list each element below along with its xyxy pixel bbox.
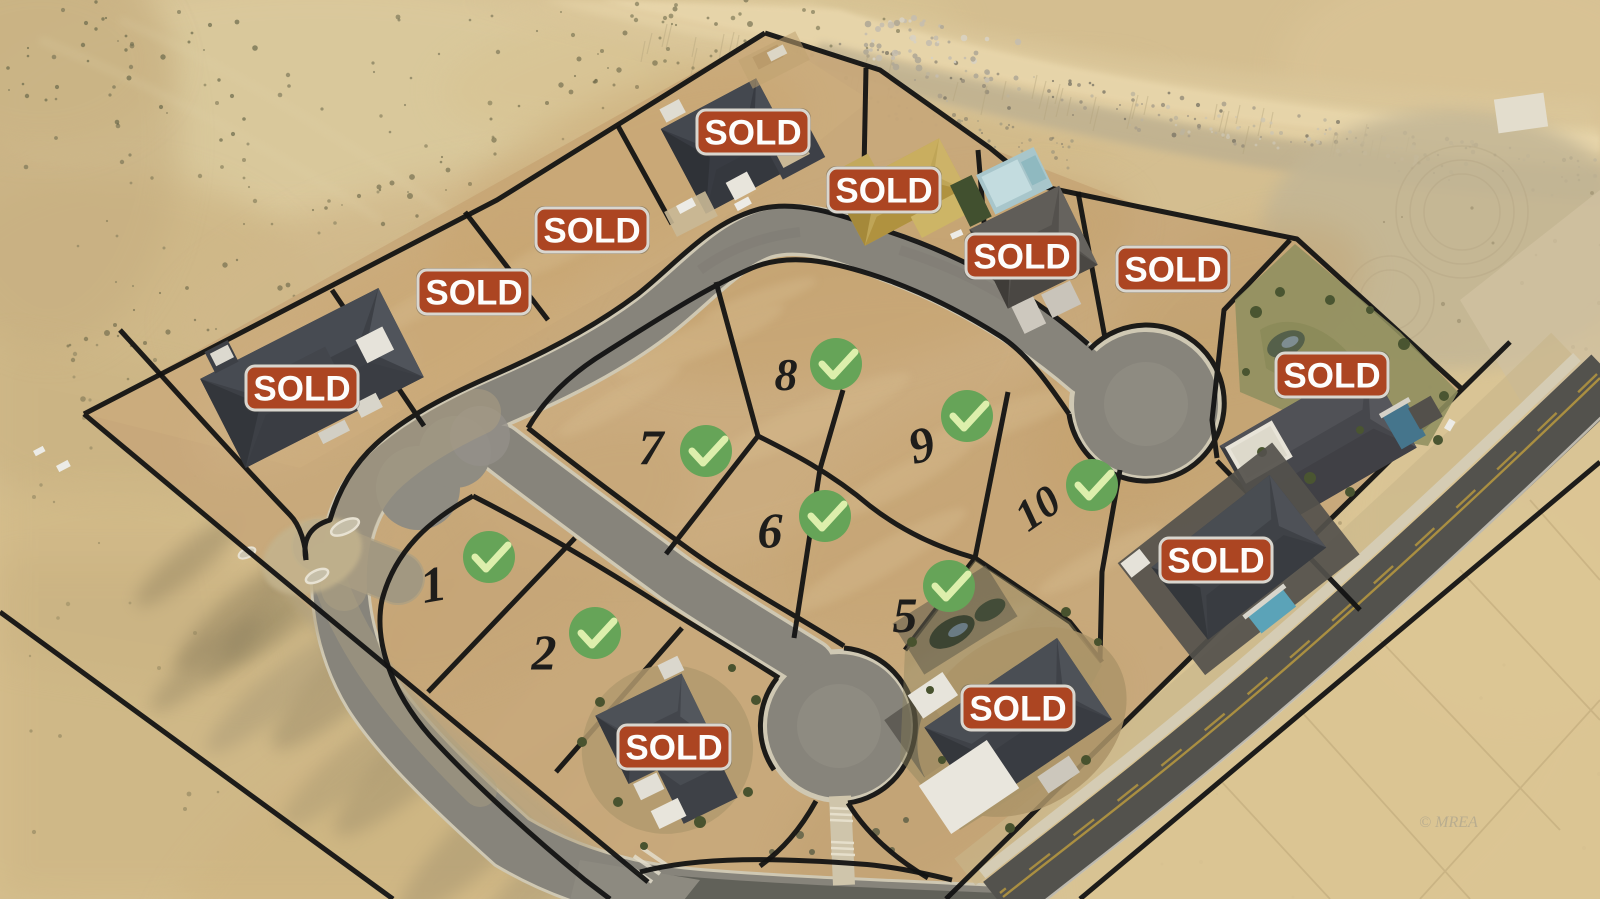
svg-text:5: 5 [893,587,918,643]
svg-text:© MREA: © MREA [1419,814,1478,831]
svg-text:SOLD: SOLD [1167,542,1264,581]
svg-text:SOLD: SOLD [835,172,932,211]
svg-text:SOLD: SOLD [253,370,350,409]
svg-text:SOLD: SOLD [543,212,640,251]
svg-text:SOLD: SOLD [973,238,1070,277]
svg-text:SOLD: SOLD [969,690,1066,729]
svg-text:SOLD: SOLD [704,114,801,153]
svg-text:SOLD: SOLD [425,274,522,313]
svg-text:SOLD: SOLD [1124,251,1221,290]
svg-text:6: 6 [758,502,783,558]
svg-text:8: 8 [775,349,798,400]
svg-text:SOLD: SOLD [1283,357,1380,396]
svg-text:7: 7 [639,419,666,475]
svg-text:2: 2 [531,624,557,680]
svg-text:SOLD: SOLD [625,729,722,768]
